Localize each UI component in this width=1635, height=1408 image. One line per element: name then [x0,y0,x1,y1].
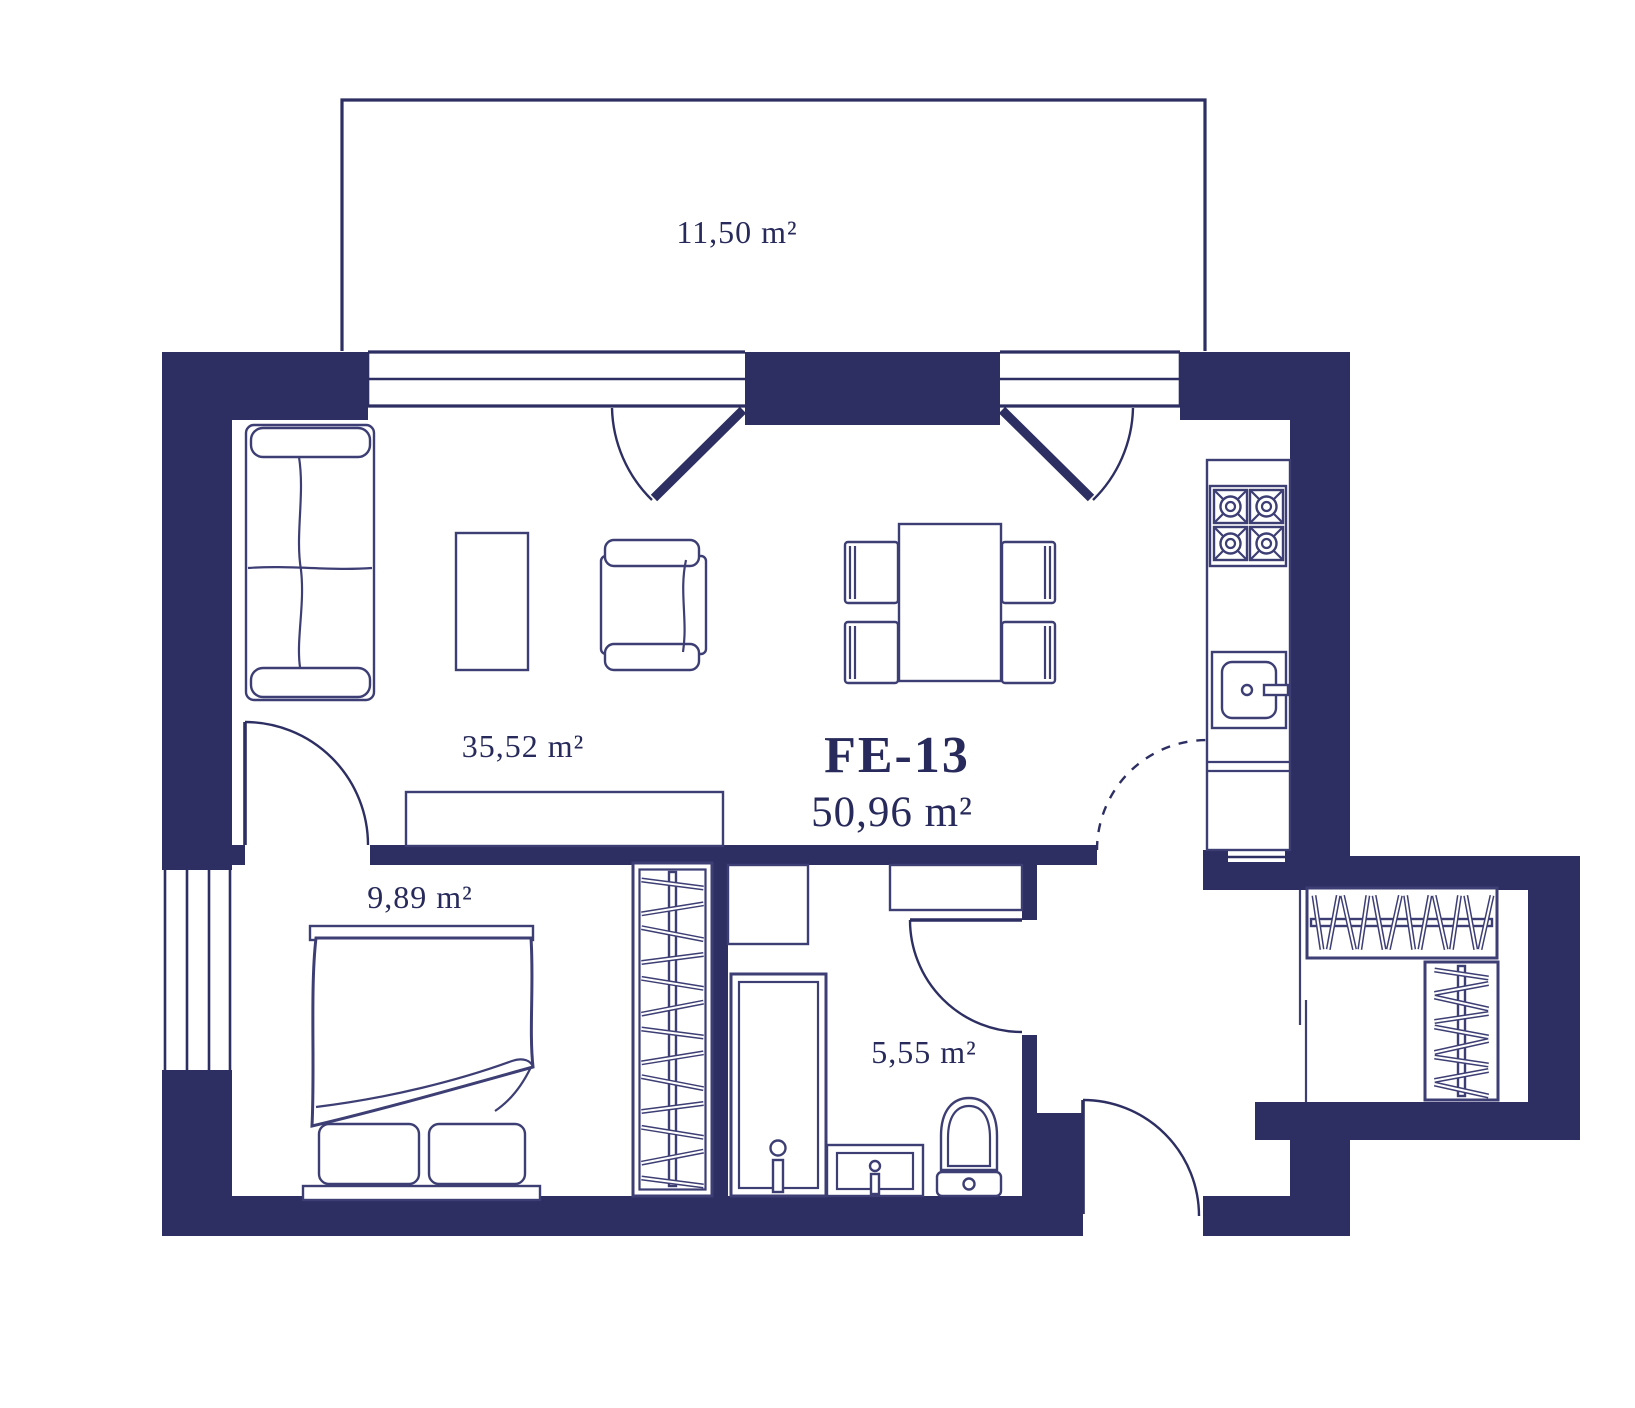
washing-machine [728,865,808,944]
pillow [429,1124,525,1184]
wardrobe-rail [669,872,676,1186]
pillow [319,1124,419,1184]
wall-bathroom-right-lower [1022,1035,1037,1196]
tv-sideboard [406,792,723,846]
balcony-door-left [612,408,743,500]
balcony-window-right [1000,352,1180,406]
dining-table [899,524,1001,681]
bedroom: 9,89 m² [303,863,712,1200]
unit-info: FE-13 50,96 m² [811,727,973,836]
balcony-door-right [1002,408,1133,500]
bathroom-sink [827,1145,923,1196]
dining-set [845,524,1055,683]
toilet [937,1098,1001,1196]
bedroom-wardrobe [633,863,712,1196]
dining-chair [845,622,898,683]
wall-bottom [162,1196,1083,1236]
wall-bathroom-top [728,845,1097,865]
shower [731,974,826,1196]
dining-chair [1002,622,1055,683]
closet [1307,888,1498,1100]
wall-left-upper [162,352,232,870]
bathroom-door [910,920,1022,1032]
kitchen [1207,460,1290,850]
unit-total-area: 50,96 m² [811,789,973,836]
closet-wardrobe-top [1307,888,1497,958]
armchair [601,540,706,670]
wall-entry-bottom [1203,1196,1350,1236]
wall-top-center [745,352,1000,425]
bedroom-door [245,722,368,845]
stove [1210,486,1286,566]
sofa-armrest-top [251,428,370,457]
floor-plan: 11,50 m² [0,0,1635,1408]
burner [1214,490,1247,523]
dining-chair [845,542,898,603]
entry-door [1083,1100,1199,1216]
wall-top-right [1180,352,1350,420]
bed-headboard [303,1186,540,1200]
bed-blanket [312,938,533,1126]
kitchen-opening-dashed [1097,740,1207,850]
balcony-window-left [368,352,745,406]
bedroom-window [162,870,232,1070]
wall-closet-right [1528,856,1580,1140]
wall-bathroom-right-upper [1022,845,1037,920]
shower-faucet [771,1141,786,1156]
floor-plan-page: 11,50 m² [0,0,1635,1408]
coffee-table [456,533,528,670]
closet-wardrobe-right [1425,962,1498,1100]
bedroom-area-label: 9,89 m² [367,879,472,915]
wardrobe-rail [1311,919,1492,926]
wall-bedroom-door-stub [232,845,245,865]
burner [1250,527,1283,560]
balcony-area-label: 11,50 m² [676,214,797,250]
closet-door-leaves [1300,890,1306,1102]
dining-chair [1002,542,1055,603]
living-area-label: 35,52 m² [462,728,584,764]
bathroom-area-label: 5,55 m² [871,1034,976,1070]
bathroom: 5,55 m² [728,865,1022,1196]
wall-bedroom-bathroom [713,845,728,1196]
burner [1250,490,1283,523]
sofa-armrest-bottom [251,668,370,697]
burner [1214,527,1247,560]
balcony: 11,50 m² [342,100,1205,351]
sofa [246,425,374,700]
faucet-handle [1264,685,1288,695]
wall-entry-left-block [1037,1113,1083,1196]
armchair-armrest-bottom [605,644,699,670]
kitchen-sink [1212,652,1288,728]
unit-id: FE-13 [824,727,970,784]
wall-right-kitchen [1290,420,1350,860]
bed [303,926,540,1200]
bathroom-shelf [890,865,1022,910]
